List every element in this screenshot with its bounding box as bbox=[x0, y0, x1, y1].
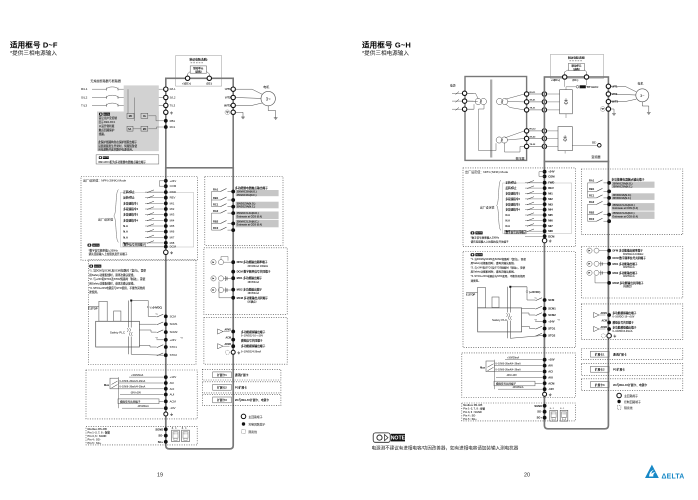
svg-text:30V/30mA 100kHz: 30V/30mA 100kHz bbox=[623, 253, 644, 256]
svg-text:Estimate at COS (0.4): Estimate at COS (0.4) bbox=[613, 215, 638, 218]
svg-text:主回路端子: 主回路端子 bbox=[249, 415, 263, 419]
svg-text:MC: MC bbox=[143, 129, 147, 131]
svg-text:SG-: SG- bbox=[537, 410, 542, 414]
svg-text:30V/30mA 100kHz: 30V/30mA 100kHz bbox=[248, 265, 269, 268]
svg-text:48V/50mA: 48V/50mA bbox=[623, 266, 635, 269]
svg-text:Estimate at COS (0.4): Estimate at COS (0.4) bbox=[237, 224, 262, 227]
svg-text:*3. STO1+24V电源应与STO使用，不能作其他用: *3. STO1+24V电源应与STO使用，不能作其他用 bbox=[471, 274, 526, 278]
svg-text:用Safety功能配线时，请再次确认配线。: 用Safety功能配线时，请再次确认配线。 bbox=[88, 273, 136, 277]
svg-text:0~10V/0~20mA/4~20mA: 0~10V/0~20mA/4~20mA bbox=[120, 386, 146, 389]
svg-text:多段速指令4: 多段速指令4 bbox=[506, 208, 521, 212]
svg-text:NOTE: NOTE bbox=[103, 157, 109, 159]
svg-text:Estimate at COS (0.4): Estimate at COS (0.4) bbox=[613, 207, 638, 210]
svg-text:8←1: 8←1 bbox=[560, 408, 564, 410]
svg-text:MI5: MI5 bbox=[548, 213, 553, 217]
svg-text:Safety PLC: Safety PLC bbox=[110, 331, 126, 335]
svg-text:ACM: ACM bbox=[602, 319, 607, 322]
svg-text:MI1: MI1 bbox=[170, 201, 175, 205]
svg-text:Safety PLC: Safety PLC bbox=[492, 318, 508, 322]
svg-text:MI6: MI6 bbox=[170, 230, 175, 234]
svg-text:N.A: N.A bbox=[123, 224, 128, 228]
svg-text:多段速指令1: 多段速指令1 bbox=[123, 201, 138, 205]
svg-text:模拟信号共同端子: 模拟信号共同端子 bbox=[120, 400, 141, 404]
svg-text:REV: REV bbox=[548, 186, 554, 190]
svg-text:+24V: +24V bbox=[170, 179, 177, 183]
svg-text:用Safety功能配线时，请再次确认配线。: 用Safety功能配线时，请再次确认配线。 bbox=[470, 261, 517, 265]
svg-text:反转/停止: 反转/停止 bbox=[123, 196, 135, 200]
svg-text:-10V: -10V bbox=[548, 387, 554, 391]
svg-text:适用框号 G~H: 适用框号 G~H bbox=[362, 40, 411, 50]
svg-text:Pin 5 : SG+: Pin 5 : SG+ bbox=[88, 441, 102, 445]
svg-text:DCM 数字频率信号共同端子: DCM 数字频率信号共同端子 bbox=[237, 270, 271, 274]
svg-text:*数字信号频率输入330Hz: *数字信号频率输入330Hz bbox=[89, 248, 119, 252]
svg-text:+10V/20mA: +10V/20mA bbox=[507, 357, 519, 360]
svg-text:MI2: MI2 bbox=[548, 197, 553, 201]
svg-text:SCM2: SCM2 bbox=[548, 313, 556, 317]
svg-text:N.A: N.A bbox=[506, 218, 511, 222]
svg-text:8←1: 8←1 bbox=[172, 428, 178, 430]
svg-text:Pin 1~2, 7, 8 : 保留: Pin 1~2, 7, 8 : 保留 bbox=[463, 407, 485, 411]
svg-text:+10V/20mA: +10V/20mA bbox=[131, 374, 144, 377]
svg-text:SGND: SGND bbox=[155, 427, 163, 431]
svg-text:出厂设定值: 出厂设定值 bbox=[98, 216, 113, 221]
svg-text:U/T1: U/T1 bbox=[225, 87, 231, 91]
svg-text:COM: COM bbox=[548, 174, 555, 178]
svg-text:多段速指令1: 多段速指令1 bbox=[506, 192, 521, 196]
svg-text:-10V/20mA: -10V/20mA bbox=[137, 405, 149, 408]
svg-text:出厂设定值: 出厂设定值 bbox=[480, 204, 495, 209]
svg-text:控制回路端子: 控制回路端子 bbox=[249, 423, 266, 427]
svg-text:0~10VDC/4-20mA: 0~10VDC/4-20mA bbox=[613, 330, 633, 333]
svg-text:RA1: RA1 bbox=[589, 179, 595, 183]
svg-text:3~: 3~ bbox=[640, 94, 645, 98]
svg-text:*3. STO1+24V电源应与STO使用，不能作其他用: *3. STO1+24V电源应与STO使用，不能作其他用 bbox=[89, 286, 145, 290]
svg-text:MI7: MI7 bbox=[170, 235, 175, 239]
svg-text:T/L3: T/L3 bbox=[81, 103, 87, 107]
svg-text:触点回路保护: 触点回路保护 bbox=[99, 128, 115, 132]
svg-text:-10V/20mA: -10V/20mA bbox=[512, 386, 524, 389]
svg-text:多功能继电器触点输出端子: 多功能继电器触点输出端子 bbox=[612, 178, 645, 182]
svg-text:Modbus RS-485: Modbus RS-485 bbox=[88, 427, 108, 431]
svg-text:R/L1: R/L1 bbox=[81, 87, 88, 91]
svg-text:DCM: DCM bbox=[170, 245, 177, 249]
svg-text:FWD: FWD bbox=[170, 190, 176, 194]
svg-text:SCM1: SCM1 bbox=[548, 307, 556, 311]
svg-text:48V/50mA: 48V/50mA bbox=[623, 275, 635, 278]
svg-text:MI3: MI3 bbox=[170, 213, 175, 217]
svg-text:适用框号 D~F: 适用框号 D~F bbox=[10, 40, 58, 50]
svg-text:用Safety功能配线时，请再次确认配线。: 用Safety功能配线时，请再次确认配线。 bbox=[88, 281, 136, 285]
svg-text:(光耦合): (光耦合) bbox=[623, 284, 632, 288]
svg-text:MO1 多功能输出端子: MO1 多功能输出端子 bbox=[237, 276, 263, 280]
svg-text:(选购): (选购) bbox=[573, 67, 580, 71]
svg-text:NOTE: NOTE bbox=[95, 266, 102, 268]
svg-text:RB1: RB1 bbox=[589, 187, 595, 191]
svg-text:此保护线路构免在保护线圈去端子: 此保护线路构免在保护线圈去端子 bbox=[98, 140, 137, 144]
svg-text:Pin 3, 6 : SGND: Pin 3, 6 : SGND bbox=[88, 434, 107, 438]
svg-text:R/L12: R/L12 bbox=[530, 129, 537, 131]
svg-text:+24V: +24V bbox=[548, 170, 555, 174]
svg-text:隔离线: 隔离线 bbox=[249, 430, 258, 434]
svg-text:模拟信号共同端子: 模拟信号共同端子 bbox=[241, 339, 263, 343]
svg-text:-10V/+10V: -10V/+10V bbox=[130, 392, 141, 394]
svg-text:T/L3: T/L3 bbox=[170, 103, 176, 107]
svg-text:设变报服发生异常时，伺服短暂使: 设变报服发生异常时，伺服短暂使 bbox=[98, 144, 137, 148]
svg-text:(+24VDC): (+24VDC) bbox=[529, 291, 540, 294]
svg-text:MCM 多功能输出共同端子: MCM 多功能输出共同端子 bbox=[237, 296, 269, 300]
svg-text:STO1: STO1 bbox=[548, 327, 556, 331]
svg-text:PG扩展卡: PG扩展卡 bbox=[613, 368, 625, 372]
svg-text:0~10V/0~20mA/4~20mA: 0~10V/0~20mA/4~20mA bbox=[120, 380, 146, 383]
svg-text:19: 19 bbox=[157, 473, 163, 479]
svg-text:RB1: RB1 bbox=[170, 119, 176, 123]
svg-text:无熔丝断路器与断路器: 无熔丝断路器与断路器 bbox=[90, 78, 120, 83]
svg-text:NOTE: NOTE bbox=[476, 233, 483, 235]
svg-text:DCM 数字频率信号共同端子: DCM 数字频率信号共同端子 bbox=[613, 256, 647, 260]
svg-text:MI1: MI1 bbox=[548, 192, 553, 196]
svg-text:SG+: SG+ bbox=[537, 416, 543, 420]
svg-text:E.STOP: E.STOP bbox=[466, 293, 476, 296]
svg-text:T/L32: T/L32 bbox=[530, 144, 536, 146]
svg-text:*2. 与+24V和STO1及STO2短路时「制动」，需使: *2. 与+24V和STO1及STO2短路时「制动」，需使 bbox=[89, 277, 145, 281]
svg-text:MI2: MI2 bbox=[170, 207, 175, 211]
svg-text:多功能模拟输出端子: 多功能模拟输出端子 bbox=[613, 325, 637, 329]
svg-text:数字信号共同端子: 数字信号共同端子 bbox=[506, 230, 527, 234]
svg-text:30VDC/3A(N.C.): 30VDC/3A(N.C.) bbox=[613, 197, 632, 200]
svg-text:NOTE: NOTE bbox=[104, 114, 111, 116]
svg-text:STO2: STO2 bbox=[548, 334, 556, 338]
svg-text:N.A: N.A bbox=[123, 235, 128, 239]
svg-text:电源: 电源 bbox=[450, 83, 456, 88]
svg-text:RC1: RC1 bbox=[170, 125, 176, 129]
svg-text:DC-: DC- bbox=[592, 142, 596, 145]
svg-text:SCM: SCM bbox=[170, 314, 177, 318]
svg-text:S/L21: S/L21 bbox=[530, 100, 537, 102]
svg-text:ACI: ACI bbox=[548, 370, 553, 374]
svg-text:(光耦合): (光耦合) bbox=[247, 299, 256, 303]
svg-text:250VAC/3A(N.C.): 250VAC/3A(N.C.) bbox=[613, 185, 633, 188]
svg-text:W/T3: W/T3 bbox=[224, 103, 231, 107]
svg-text:需让用户安控制: 需让用户安控制 bbox=[99, 116, 118, 120]
svg-text:AFM1: AFM1 bbox=[600, 312, 607, 315]
svg-text:E.STOP: E.STOP bbox=[88, 307, 98, 311]
svg-text:NOTE: NOTE bbox=[476, 254, 483, 256]
svg-text:ACM: ACM bbox=[170, 399, 177, 403]
svg-text:模拟信号共同端子: 模拟信号共同端子 bbox=[496, 382, 517, 386]
svg-text:出厂设定值：NPN (SINK) Mode: 出厂设定值：NPN (SINK) Mode bbox=[83, 178, 126, 183]
svg-text:250VAC/3A(N.C.): 250VAC/3A(N.C.) bbox=[237, 194, 257, 197]
svg-text:出厂设定值：NPN (SINK) Mode: 出厂设定值：NPN (SINK) Mode bbox=[465, 169, 508, 174]
svg-text:隔离线: 隔离线 bbox=[624, 406, 633, 410]
svg-text:DCM: DCM bbox=[548, 234, 555, 238]
svg-text:RA2: RA2 bbox=[213, 209, 219, 213]
svg-text:多功能模拟输出端子: 多功能模拟输出端子 bbox=[613, 311, 637, 315]
svg-text:SCM1: SCM1 bbox=[170, 322, 178, 326]
svg-text:扩展卡1: 扩展卡1 bbox=[595, 353, 605, 357]
svg-text:SG+: SG+ bbox=[158, 440, 164, 444]
svg-text:*数字信号频率输入330Hz: *数字信号频率输入330Hz bbox=[471, 236, 500, 240]
svg-text:AVI: AVI bbox=[170, 381, 175, 385]
svg-text:(选购): (选购) bbox=[195, 69, 202, 73]
svg-text:(+24VDC): (+24VDC) bbox=[151, 306, 163, 310]
svg-text:模拟信号共同端子: 模拟信号共同端子 bbox=[613, 321, 635, 325]
svg-text:扩展卡1: 扩展卡1 bbox=[217, 373, 227, 377]
svg-text:多功能模拟输出端子: 多功能模拟输出端子 bbox=[241, 344, 266, 348]
svg-text:V/T2: V/T2 bbox=[225, 96, 231, 100]
svg-text:NOTE: NOTE bbox=[93, 245, 100, 247]
svg-text:(DC-): (DC-) bbox=[573, 79, 579, 82]
svg-text:0~10VDC/4-20mA: 0~10VDC/4-20mA bbox=[241, 351, 261, 354]
svg-text:ΔELTA: ΔELTA bbox=[662, 473, 685, 480]
svg-text:SCM: SCM bbox=[548, 298, 555, 302]
svg-text:主回路端子: 主回路端子 bbox=[624, 394, 638, 398]
svg-text:+1(DC+): +1(DC+) bbox=[551, 79, 560, 82]
svg-text:STO1: STO1 bbox=[170, 345, 178, 349]
svg-text:AUI: AUI bbox=[170, 393, 175, 397]
svg-text:通讯扩展卡: 通讯扩展卡 bbox=[235, 373, 249, 377]
svg-text:*1. 当DCM与SCM1及SCM2短路时「复归」，需使: *1. 当DCM与SCM1及SCM2短路时「复归」，需使 bbox=[471, 257, 527, 261]
svg-text:回子RB1·RC1: 回子RB1·RC1 bbox=[99, 120, 116, 124]
svg-text:电机: 电机 bbox=[638, 81, 644, 86]
svg-text:STO2: STO2 bbox=[170, 353, 178, 357]
svg-text:请先连接输入上拉阻抗及开关端子: 请先连接输入上拉阻抗及开关端子 bbox=[471, 239, 509, 243]
svg-text:S/L22: S/L22 bbox=[530, 136, 537, 138]
svg-text:20: 20 bbox=[524, 473, 530, 479]
svg-text:Pin 4 : SG-: Pin 4 : SG- bbox=[88, 438, 101, 442]
svg-text:8←1: 8←1 bbox=[182, 428, 188, 430]
svg-text:-10V: -10V bbox=[170, 406, 176, 410]
svg-text:反转/停止: 反转/停止 bbox=[506, 186, 518, 190]
svg-text:RC1: RC1 bbox=[589, 194, 595, 198]
svg-text:3~: 3~ bbox=[266, 96, 271, 101]
svg-text:*2. 与+24V和STO1及STO2短路时「制动」，需使: *2. 与+24V和STO1及STO2短路时「制动」，需使 bbox=[471, 265, 526, 269]
svg-text:MI4: MI4 bbox=[548, 208, 553, 212]
svg-text:0~10VDC/-10~+10V: 0~10VDC/-10~+10V bbox=[241, 334, 263, 337]
svg-text:扩展卡2: 扩展卡2 bbox=[217, 386, 227, 390]
svg-text:SGND: SGND bbox=[534, 404, 542, 408]
svg-text:AFM1: AFM1 bbox=[224, 328, 231, 331]
svg-text:-10V/+10V: -10V/+10V bbox=[506, 375, 517, 377]
svg-text:RB1·RC1配为多功能继电器触点输出端子: RB1·RC1配为多功能继电器触点输出端子 bbox=[99, 160, 147, 164]
svg-text:8←1: 8←1 bbox=[550, 408, 554, 410]
svg-text:多段速指令2: 多段速指令2 bbox=[506, 197, 521, 201]
svg-text:RC1: RC1 bbox=[213, 202, 219, 206]
svg-text:ACM: ACM bbox=[548, 381, 555, 385]
svg-text:多段速指令2: 多段速指令2 bbox=[123, 207, 138, 211]
svg-text:48V/50mA: 48V/50mA bbox=[248, 292, 260, 295]
svg-text:多段速指令3: 多段速指令3 bbox=[506, 202, 521, 206]
svg-text:R/L11: R/L11 bbox=[530, 92, 537, 94]
svg-text:N.A: N.A bbox=[506, 213, 511, 217]
svg-text:途使用。: 途使用。 bbox=[471, 278, 481, 282]
svg-text:ACM: ACM bbox=[226, 336, 231, 339]
svg-text:R/L1: R/L1 bbox=[170, 87, 176, 91]
svg-text:通讯扩展卡: 通讯扩展卡 bbox=[613, 353, 627, 357]
svg-text:0~10V/0~20mA/4~20mA: 0~10V/0~20mA/4~20mA bbox=[496, 368, 522, 371]
svg-text:S/L2: S/L2 bbox=[170, 96, 176, 100]
svg-text:NOTE: NOTE bbox=[391, 436, 406, 442]
svg-text:RB1: RB1 bbox=[213, 196, 219, 200]
svg-text:线路。: 线路。 bbox=[99, 132, 107, 136]
svg-text:MC: MC bbox=[129, 116, 133, 118]
svg-text:RC2: RC2 bbox=[213, 226, 219, 230]
svg-text:PG扩展卡: PG扩展卡 bbox=[235, 386, 247, 390]
svg-text:正转/停止: 正转/停止 bbox=[123, 190, 135, 194]
svg-text:RA1: RA1 bbox=[213, 187, 219, 191]
svg-text:SG-: SG- bbox=[158, 434, 163, 438]
svg-text:制动电阻(选购): 制动电阻(选购) bbox=[190, 57, 208, 61]
svg-text:SA: SA bbox=[128, 128, 132, 131]
svg-text:(DC-): (DC-) bbox=[207, 83, 213, 85]
svg-text:多段速指令4: 多段速指令4 bbox=[123, 218, 138, 222]
svg-text:AFM2: AFM2 bbox=[600, 326, 607, 329]
svg-text:多功能模拟输出端子: 多功能模拟输出端子 bbox=[241, 330, 266, 334]
svg-text:多段速指令3: 多段速指令3 bbox=[123, 213, 138, 217]
svg-text:扩展卡3: 扩展卡3 bbox=[595, 383, 605, 387]
svg-text:+24V: +24V bbox=[170, 338, 177, 342]
svg-text:MO2 多功能输出端子: MO2 多功能输出端子 bbox=[237, 288, 263, 292]
svg-text:Pin 5 : SG+: Pin 5 : SG+ bbox=[463, 418, 477, 421]
svg-text:RB2: RB2 bbox=[589, 210, 595, 214]
svg-text:电源测不建议有进相电容/功因改善器，如有进相电容请加装输入测: 电源测不建议有进相电容/功因改善器，如有进相电容请加装输入测电抗器 bbox=[372, 445, 519, 452]
svg-text:ACI: ACI bbox=[170, 387, 175, 391]
svg-text:多功能继电器触点输出端子: 多功能继电器触点输出端子 bbox=[235, 186, 268, 190]
svg-text:+10V: +10V bbox=[170, 375, 177, 379]
svg-text:途使用。: 途使用。 bbox=[89, 290, 99, 294]
svg-text:30VDC/3A(N.C.): 30VDC/3A(N.C.) bbox=[237, 206, 256, 209]
svg-text:DFM 多功能输出频率端子: DFM 多功能输出频率端子 bbox=[237, 260, 268, 264]
svg-text:MI8: MI8 bbox=[548, 229, 553, 233]
svg-text:变压器: 变压器 bbox=[515, 156, 524, 161]
svg-text:T/L31: T/L31 bbox=[530, 108, 536, 110]
svg-text:*提供三相电源输入: *提供三相电源输入 bbox=[362, 49, 409, 57]
svg-text:+10V: +10V bbox=[548, 358, 555, 362]
svg-text:RC2: RC2 bbox=[589, 217, 595, 221]
svg-text:I/O与RELAY扩展卡、电源卡: I/O与RELAY扩展卡、电源卡 bbox=[613, 383, 647, 387]
svg-text:数字信号共同端子: 数字信号共同端子 bbox=[123, 243, 146, 247]
svg-text:Estimate at COS (0.4): Estimate at COS (0.4) bbox=[237, 215, 262, 218]
svg-text:48V/50mA: 48V/50mA bbox=[248, 281, 260, 284]
svg-text:MI7: MI7 bbox=[548, 224, 553, 228]
svg-text:COM: COM bbox=[170, 184, 177, 188]
svg-text:S/L2: S/L2 bbox=[81, 96, 88, 100]
svg-text:AVI: AVI bbox=[548, 364, 553, 368]
svg-text:FWD: FWD bbox=[548, 181, 554, 185]
svg-text:变频器: 变频器 bbox=[591, 154, 600, 159]
svg-text:MI4: MI4 bbox=[170, 218, 175, 222]
svg-text:扩展卡3: 扩展卡3 bbox=[217, 398, 227, 402]
svg-text:I/O与RELAY扩展卡、电源卡: I/O与RELAY扩展卡、电源卡 bbox=[235, 398, 269, 402]
svg-text:N.A: N.A bbox=[123, 230, 128, 234]
svg-text:用Safety功能配线时，请再次确认配线。: 用Safety功能配线时，请再次确认配线。 bbox=[470, 270, 517, 274]
svg-text:请先连接输入上拉阻抗及开关端子: 请先连接输入上拉阻抗及开关端子 bbox=[89, 252, 128, 256]
svg-text:扩展卡2: 扩展卡2 bbox=[595, 368, 605, 372]
svg-text:用电源断开此回路护电源采用。: 用电源断开此回路护电源采用。 bbox=[97, 147, 134, 151]
svg-text:RA2: RA2 bbox=[589, 200, 595, 204]
svg-text:MI5: MI5 bbox=[170, 224, 175, 228]
svg-text:Pin 1~2, 7, 8 : 保留: Pin 1~2, 7, 8 : 保留 bbox=[88, 431, 111, 435]
svg-text:REV: REV bbox=[170, 196, 176, 200]
svg-text:以设异常状报: 以设异常状报 bbox=[99, 124, 115, 128]
svg-text:AFM2: AFM2 bbox=[224, 343, 231, 346]
svg-text:DC reactor: DC reactor bbox=[587, 86, 599, 89]
svg-text:电机: 电机 bbox=[263, 84, 269, 89]
svg-text:N.A: N.A bbox=[506, 224, 511, 228]
svg-text:SCM2: SCM2 bbox=[170, 330, 178, 334]
svg-text:MI3: MI3 bbox=[548, 202, 553, 206]
svg-text:控制回路端子: 控制回路端子 bbox=[624, 400, 641, 404]
svg-text:制动电阻(选购): 制动电阻(选购) bbox=[568, 56, 585, 60]
svg-text:0~10V/0~20mA/4~20mA: 0~10V/0~20mA/4~20mA bbox=[496, 362, 522, 365]
svg-text:正转/停止: 正转/停止 bbox=[506, 181, 518, 185]
svg-text:*提供三相电源输入: *提供三相电源输入 bbox=[10, 49, 57, 57]
svg-text:Mux: Mux bbox=[104, 384, 110, 387]
svg-text:AUI: AUI bbox=[548, 375, 553, 379]
svg-text:+24V: +24V bbox=[548, 320, 555, 324]
svg-text:+1(DC+): +1(DC+) bbox=[182, 83, 191, 85]
svg-text:Mux: Mux bbox=[480, 367, 486, 370]
svg-text:MI6: MI6 bbox=[548, 218, 553, 222]
svg-text:0~10VDC/-10~+10V: 0~10VDC/-10~+10V bbox=[613, 315, 635, 318]
svg-text:*1. 当DCM与SCM1及SCM2短路时「复归」，需使: *1. 当DCM与SCM1及SCM2短路时「复归」，需使 bbox=[89, 268, 146, 272]
svg-text:RB2: RB2 bbox=[213, 219, 219, 223]
